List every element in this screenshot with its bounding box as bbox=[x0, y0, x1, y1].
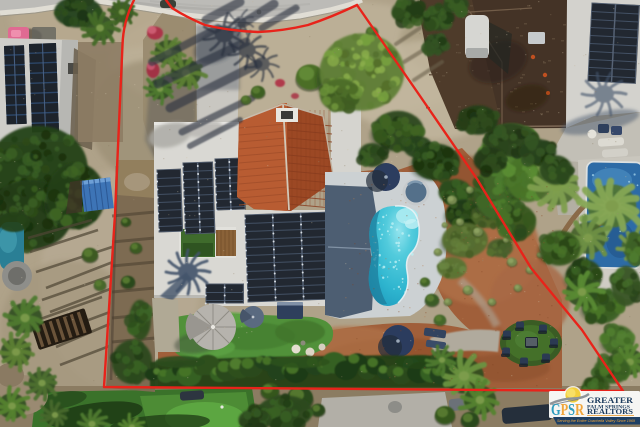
svg-text:Serving the Entire Coachella V: Serving the Entire Coachella Valley Sinc… bbox=[557, 419, 635, 423]
svg-text:GPSR: GPSR bbox=[551, 400, 585, 419]
